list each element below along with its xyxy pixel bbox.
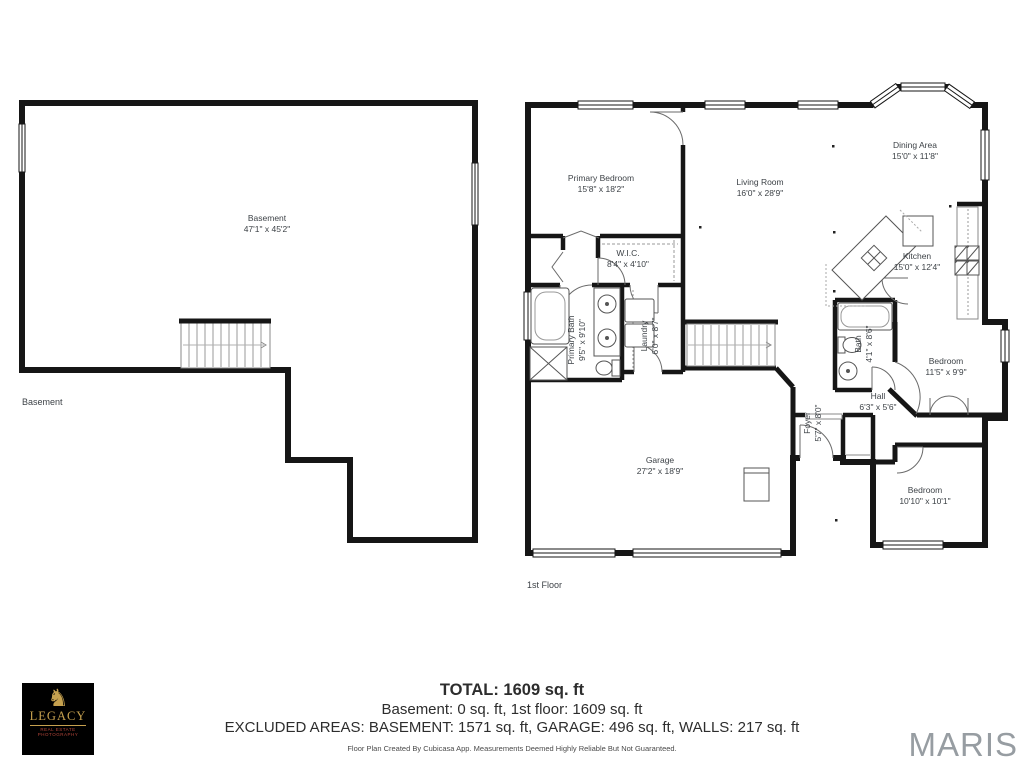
- logo-divider: [30, 725, 86, 726]
- room-label-living-room: Living Room 16'0" x 28'9": [736, 177, 783, 199]
- basement-stairs: [179, 321, 271, 368]
- room-label-garage: Garage 27'2" x 18'9": [637, 455, 684, 477]
- legacy-logo: ♞ LEGACY REAL ESTATE PHOTOGRAPHY: [22, 683, 94, 755]
- first-floor-stairs: [687, 324, 775, 366]
- room-label-foyer: Foyer 5'7" x 8'0": [802, 404, 824, 441]
- floor-label-1st-floor: 1st Floor: [527, 580, 562, 590]
- horse-icon: ♞: [22, 687, 94, 711]
- basement-plan: [19, 103, 478, 540]
- garage-door: [533, 549, 781, 557]
- logo-subtitle-photography: PHOTOGRAPHY: [22, 732, 94, 737]
- room-label-kitchen: Kitchen 15'0" x 12'4": [894, 251, 941, 273]
- room-label-basement: Basement 47'1" x 45'2": [244, 213, 291, 235]
- floor-label-basement: Basement: [22, 397, 63, 407]
- floor-areas-line: Basement: 0 sq. ft, 1st floor: 1609 sq. …: [0, 701, 1024, 718]
- room-label-bedroom-2: Bedroom 10'10" x 10'1": [899, 485, 950, 507]
- floor-plan-drawing: [0, 0, 1024, 768]
- room-label-laundry: Laundry 6'0" x 8'7": [639, 317, 661, 354]
- total-area-line: TOTAL: 1609 sq. ft: [0, 681, 1024, 700]
- room-label-bedroom-1: Bedroom 11'5" x 9'9": [925, 356, 966, 378]
- excluded-areas-line: EXCLUDED AREAS: BASEMENT: 1571 sq. ft, G…: [0, 719, 1024, 736]
- maris-watermark: MARIS: [908, 726, 1018, 764]
- room-label-primary-bedroom: Primary Bedroom 15'8" x 18'2": [568, 173, 634, 195]
- disclaimer-line: Floor Plan Created By Cubicasa App. Meas…: [0, 744, 1024, 753]
- room-label-primary-bath: Primary Bath 9'5" x 9'10": [566, 315, 588, 364]
- room-label-wic: W.I.C. 8'4" x 4'10": [607, 248, 649, 270]
- floor-plan-page: Basement 47'1" x 45'2" Primary Bedroom 1…: [0, 0, 1024, 768]
- room-label-bath: Bath 4'1" x 8'6": [853, 325, 875, 362]
- room-label-hall: Hall 6'3" x 5'6": [859, 391, 896, 413]
- logo-wordmark: LEGACY: [22, 709, 94, 724]
- room-label-dining-area: Dining Area 15'0" x 11'8": [892, 140, 938, 162]
